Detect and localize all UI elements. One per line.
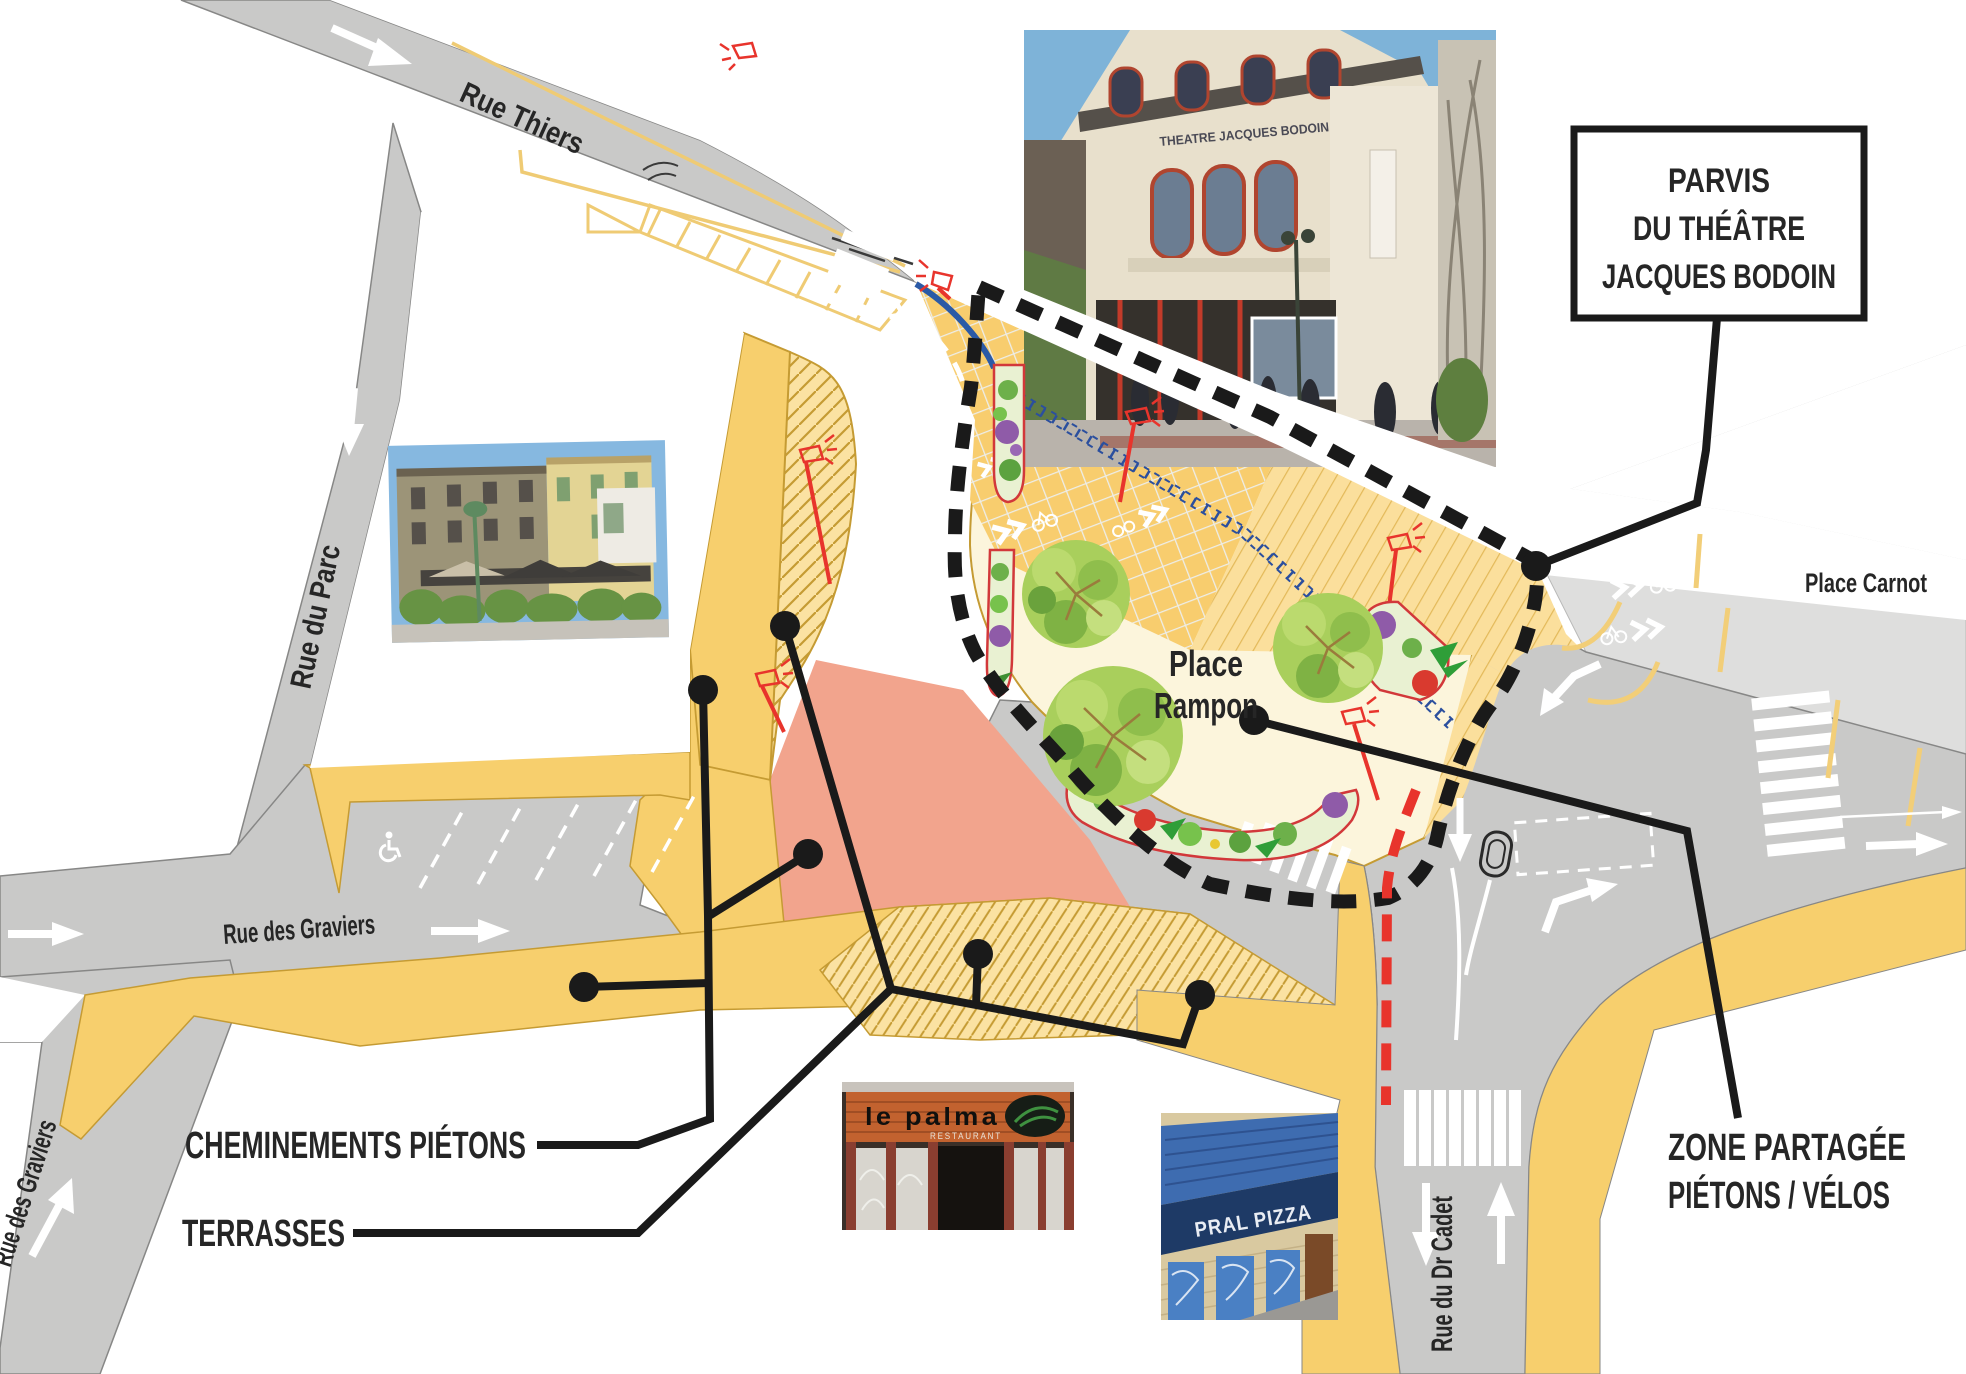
svg-text:Rue du Dr Cadet: Rue du Dr Cadet — [1426, 1196, 1459, 1352]
svg-text:PIÉTONS / VÉLOS: PIÉTONS / VÉLOS — [1668, 1173, 1890, 1217]
svg-text:Rampon: Rampon — [1154, 685, 1258, 726]
svg-text:RESTAURANT: RESTAURANT — [930, 1131, 1002, 1141]
svg-text:ZONE PARTAGÉE: ZONE PARTAGÉE — [1668, 1125, 1906, 1169]
svg-text:TERRASSES: TERRASSES — [182, 1213, 345, 1255]
svg-text:Place Carnot: Place Carnot — [1805, 568, 1927, 598]
svg-text:Place: Place — [1169, 643, 1243, 684]
svg-text:PARVIS: PARVIS — [1668, 162, 1770, 200]
svg-text:DU THÉÂTRE: DU THÉÂTRE — [1633, 210, 1805, 248]
svg-text:JACQUES BODOIN: JACQUES BODOIN — [1602, 258, 1836, 296]
svg-text:le palma: le palma — [865, 1103, 1000, 1131]
svg-text:CHEMINEMENTS PIÉTONS: CHEMINEMENTS PIÉTONS — [185, 1123, 526, 1167]
